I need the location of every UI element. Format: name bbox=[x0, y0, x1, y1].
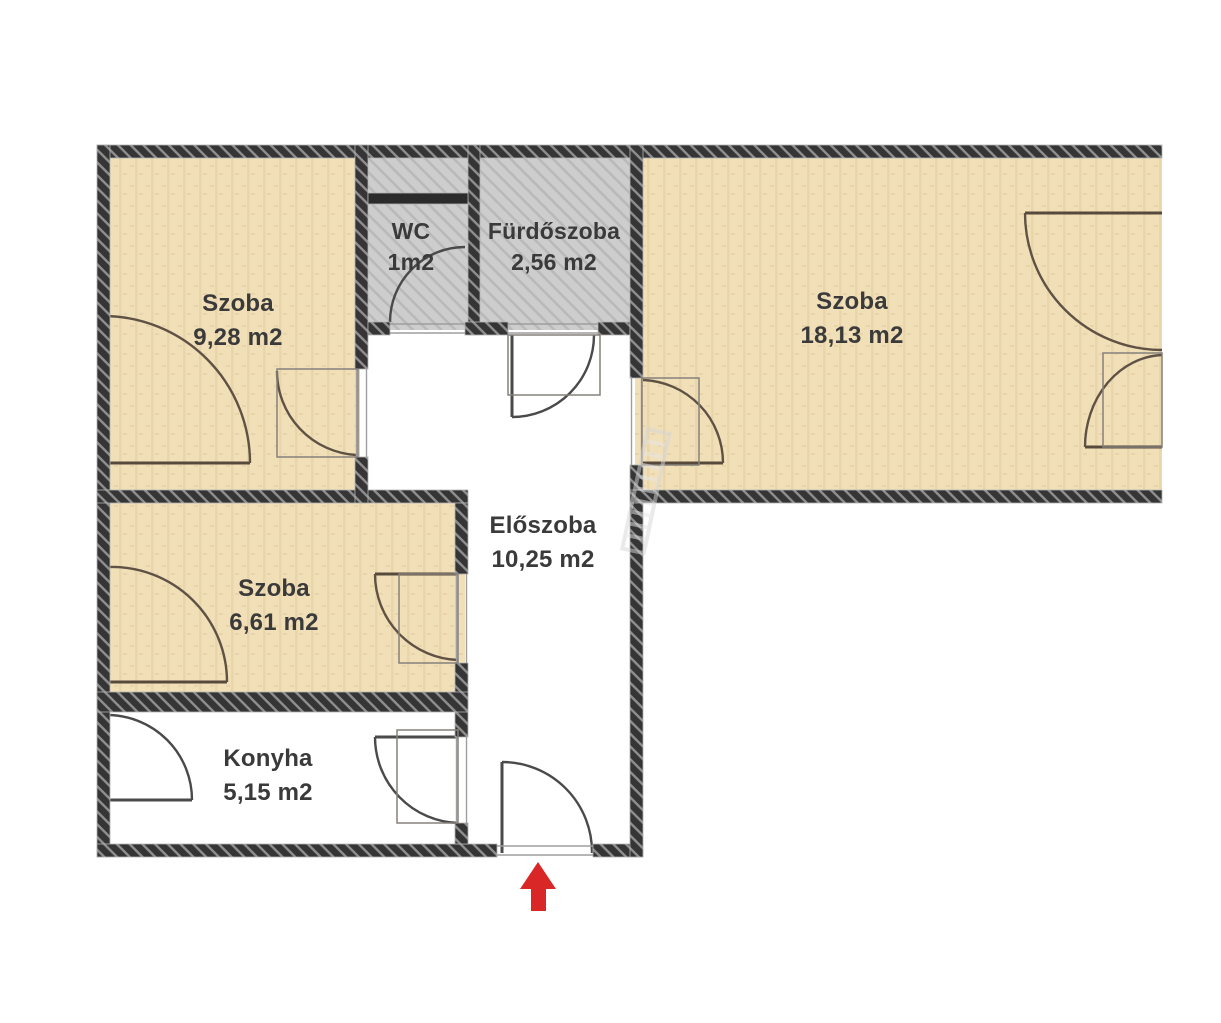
room-name: Előszoba bbox=[490, 509, 597, 543]
room-name: Szoba bbox=[800, 285, 903, 319]
room-name: WC bbox=[388, 216, 435, 247]
entrance-arrow-icon bbox=[520, 862, 556, 911]
room-area: 18,13 m2 bbox=[800, 319, 903, 353]
room-label-eloszoba: Előszoba 10,25 m2 bbox=[490, 509, 597, 577]
room-area: 10,25 m2 bbox=[490, 543, 597, 577]
floorplan-svg bbox=[0, 0, 1221, 1023]
room-label-szoba-1813: Szoba 18,13 m2 bbox=[800, 285, 903, 353]
room-area: 1m2 bbox=[388, 247, 435, 278]
floorplan-page: Szoba 9,28 m2 WC 1m2 Fürdőszoba 2,56 m2 … bbox=[0, 0, 1221, 1023]
room-name: Konyha bbox=[223, 742, 312, 776]
room-area: 2,56 m2 bbox=[488, 247, 620, 278]
room-area: 5,15 m2 bbox=[223, 776, 312, 810]
room-area: 6,61 m2 bbox=[229, 606, 318, 640]
room-area: 9,28 m2 bbox=[193, 321, 282, 355]
room-label-szoba-928: Szoba 9,28 m2 bbox=[193, 287, 282, 355]
room-label-furdoszoba: Fürdőszoba 2,56 m2 bbox=[488, 216, 620, 278]
room-name: Fürdőszoba bbox=[488, 216, 620, 247]
room-name: Szoba bbox=[193, 287, 282, 321]
room-label-konyha: Konyha 5,15 m2 bbox=[223, 742, 312, 810]
room-label-wc: WC 1m2 bbox=[388, 216, 435, 278]
room-name: Szoba bbox=[229, 572, 318, 606]
room-label-szoba-661: Szoba 6,61 m2 bbox=[229, 572, 318, 640]
